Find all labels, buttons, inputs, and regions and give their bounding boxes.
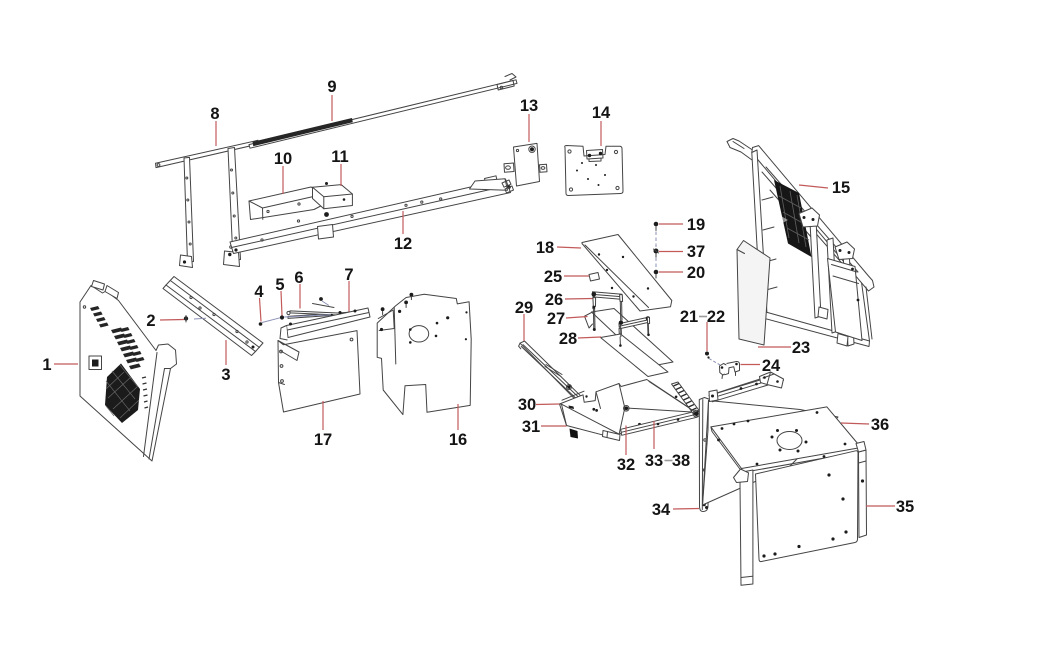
svg-text:15: 15 bbox=[832, 179, 850, 197]
svg-text:37: 37 bbox=[687, 243, 705, 261]
svg-text:17: 17 bbox=[314, 431, 332, 449]
svg-text:28: 28 bbox=[559, 330, 577, 348]
svg-text:4: 4 bbox=[254, 283, 264, 301]
svg-text:23: 23 bbox=[792, 339, 810, 357]
svg-text:10: 10 bbox=[274, 150, 292, 168]
svg-text:1: 1 bbox=[42, 356, 51, 374]
svg-text:11: 11 bbox=[331, 148, 348, 166]
svg-text:2: 2 bbox=[146, 312, 155, 330]
svg-text:13: 13 bbox=[520, 97, 538, 115]
svg-text:16: 16 bbox=[449, 431, 467, 449]
svg-text:25: 25 bbox=[544, 268, 562, 286]
svg-text:26: 26 bbox=[545, 291, 563, 309]
svg-text:21: 21 bbox=[680, 308, 698, 326]
svg-text:33: 33 bbox=[645, 452, 663, 470]
svg-text:22: 22 bbox=[707, 308, 725, 326]
svg-text:9: 9 bbox=[327, 78, 336, 96]
svg-text:36: 36 bbox=[871, 416, 889, 434]
svg-text:14: 14 bbox=[592, 104, 611, 122]
svg-text:31: 31 bbox=[522, 418, 540, 436]
svg-text:27: 27 bbox=[547, 310, 565, 328]
svg-text:34: 34 bbox=[652, 501, 671, 519]
svg-text:5: 5 bbox=[275, 276, 284, 294]
svg-text:20: 20 bbox=[687, 264, 705, 282]
svg-text:24: 24 bbox=[762, 357, 781, 375]
svg-text:7: 7 bbox=[344, 266, 353, 284]
svg-text:19: 19 bbox=[687, 216, 705, 234]
svg-text:32: 32 bbox=[617, 456, 635, 474]
svg-text:12: 12 bbox=[394, 235, 412, 253]
svg-text:30: 30 bbox=[518, 396, 536, 414]
svg-text:18: 18 bbox=[536, 239, 554, 257]
svg-text:8: 8 bbox=[210, 105, 219, 123]
svg-text:6: 6 bbox=[294, 269, 303, 287]
svg-text:38: 38 bbox=[672, 452, 690, 470]
svg-text:35: 35 bbox=[896, 498, 914, 516]
svg-text:3: 3 bbox=[221, 366, 230, 384]
svg-text:29: 29 bbox=[515, 299, 533, 317]
